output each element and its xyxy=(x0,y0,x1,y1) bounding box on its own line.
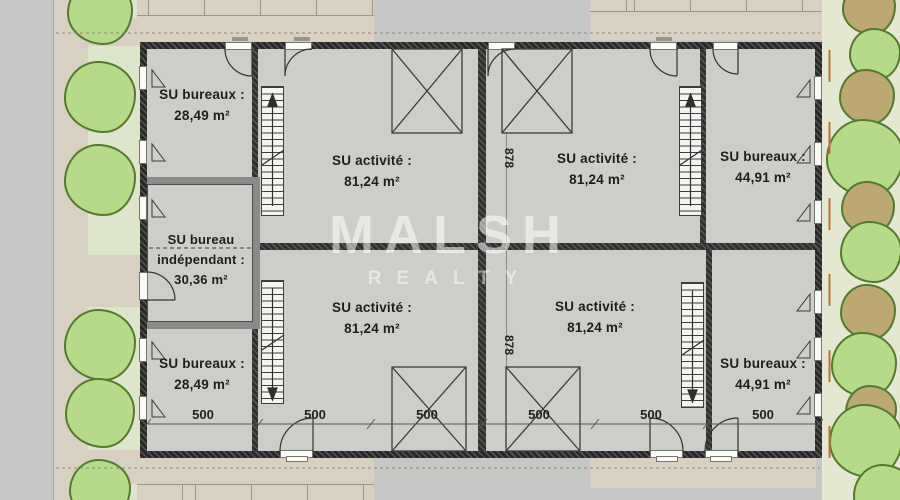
room-area: 81,24 m² xyxy=(515,317,675,338)
window-opening xyxy=(139,196,147,220)
parking-stall-lines xyxy=(137,0,374,16)
parking-top-left xyxy=(137,0,374,46)
dimension-label: 500 xyxy=(514,407,564,422)
dimension-label: 500 xyxy=(402,407,452,422)
room-name: SU activité : xyxy=(517,148,677,169)
window-opening xyxy=(814,76,822,100)
door-opening xyxy=(650,42,677,50)
room-area: 30,36 m² xyxy=(140,270,262,290)
tree-icon xyxy=(64,309,136,381)
road-strip xyxy=(0,0,54,500)
room-name: SU bureaux : xyxy=(132,353,272,374)
tree-icon xyxy=(64,61,136,133)
door-threshold xyxy=(286,456,308,462)
floor-plan: SU bureaux : 28,49 m² SU activité : 81,2… xyxy=(0,0,900,500)
tree-icon xyxy=(65,378,135,448)
room-label-bureaux-bottom-right: SU bureaux : 44,91 m² xyxy=(700,353,826,395)
size-tag xyxy=(294,37,310,41)
size-tag xyxy=(232,37,248,41)
room-name: SU activité : xyxy=(292,150,452,171)
room-label-activite-bottom-right: SU activité : 81,24 m² xyxy=(515,296,675,338)
wall-segment xyxy=(478,49,486,451)
room-label-activite-bottom-left: SU activité : 81,24 m² xyxy=(292,297,452,339)
dimension-label: 500 xyxy=(626,407,676,422)
room-name: indépendant : xyxy=(140,250,262,270)
door-opening xyxy=(285,42,312,50)
dimension-label: 500 xyxy=(290,407,340,422)
door-opening xyxy=(225,42,252,50)
size-tag xyxy=(656,37,672,41)
room-area: 28,49 m² xyxy=(132,105,272,126)
dimension-label: 500 xyxy=(738,407,788,422)
room-name: SU activité : xyxy=(515,296,675,317)
room-name: SU activité : xyxy=(292,297,452,318)
door-threshold xyxy=(710,456,732,462)
window-opening xyxy=(814,393,822,417)
tree-icon xyxy=(839,69,895,125)
dimension-label: 500 xyxy=(178,407,228,422)
paving-band-bottom-right xyxy=(590,455,816,488)
parking-stall-lines xyxy=(590,0,822,12)
dimension-label: 878 xyxy=(502,325,516,365)
room-label-bureaux-bottom-left: SU bureaux : 28,49 m² xyxy=(132,353,272,395)
wall-segment xyxy=(706,250,712,451)
room-label-activite-top-left: SU activité : 81,24 m² xyxy=(292,150,452,192)
room-label-bureaux-top-right: SU bureaux : 44,91 m² xyxy=(700,146,826,188)
door-opening xyxy=(488,42,515,50)
room-name: SU bureau xyxy=(140,230,262,250)
door-threshold xyxy=(656,456,678,462)
room-name: SU bureaux : xyxy=(132,84,272,105)
room-area: 81,24 m² xyxy=(292,318,452,339)
parking-top-right xyxy=(590,0,822,40)
room-area: 81,24 m² xyxy=(292,171,452,192)
window-opening xyxy=(139,140,147,164)
room-area: 28,49 m² xyxy=(132,374,272,395)
entrance-path-left xyxy=(88,255,140,307)
wall-segment xyxy=(252,243,822,250)
room-label-activite-top-right: SU activité : 81,24 m² xyxy=(517,148,677,190)
room-area: 81,24 m² xyxy=(517,169,677,190)
room-name: SU bureaux : xyxy=(700,146,826,167)
room-label-bureaux-top-left: SU bureaux : 28,49 m² xyxy=(132,84,272,126)
staircase xyxy=(679,86,702,216)
room-area: 44,91 m² xyxy=(700,167,826,188)
tree-icon xyxy=(840,221,900,283)
door-opening xyxy=(713,42,738,50)
window-opening xyxy=(814,200,822,224)
parking-stall-lines xyxy=(137,484,374,500)
window-opening xyxy=(139,396,147,420)
room-name: SU bureaux : xyxy=(700,353,826,374)
parking-bottom-left xyxy=(137,484,374,500)
tree-icon xyxy=(64,144,136,216)
window-opening xyxy=(814,290,822,314)
dimension-label: 878 xyxy=(502,138,516,178)
room-area: 44,91 m² xyxy=(700,374,826,395)
room-label-bureau-independant: SU bureau indépendant : 30,36 m² xyxy=(140,230,262,290)
